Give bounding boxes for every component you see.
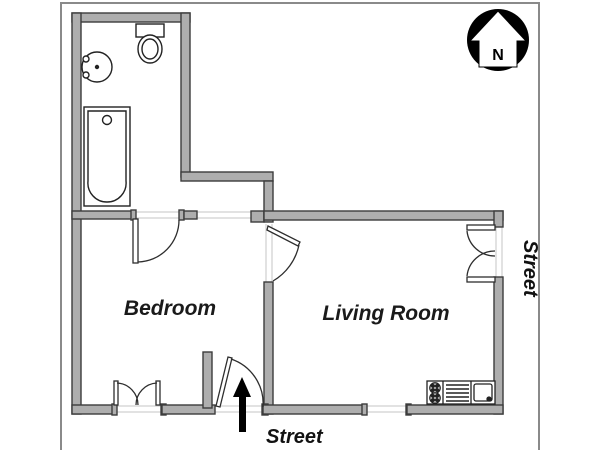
north-arrow-icon: N bbox=[467, 9, 529, 71]
door-jamb bbox=[179, 210, 184, 220]
bedroom-french-doors bbox=[114, 381, 160, 405]
passage-stub bbox=[251, 211, 264, 222]
bathroom-door bbox=[133, 219, 179, 263]
kitchen-unit bbox=[427, 381, 495, 404]
bathroom-bottom-wall-right bbox=[184, 211, 197, 219]
bedroom-label: Bedroom bbox=[124, 297, 216, 320]
street-label-right: Street bbox=[519, 240, 541, 298]
bottom-wall-1 bbox=[72, 405, 116, 414]
bottom-wall-3 bbox=[263, 405, 365, 414]
street-label-bottom: Street bbox=[266, 426, 324, 448]
living-room-label: Living Room bbox=[322, 302, 449, 325]
bottom-wall-4 bbox=[407, 405, 503, 414]
bathroom-top-wall bbox=[72, 13, 190, 22]
toilet-icon bbox=[136, 24, 164, 63]
entry-stub-wall bbox=[203, 352, 212, 408]
bathroom-fixtures bbox=[82, 24, 164, 206]
kitchen-sink-icon bbox=[471, 381, 492, 404]
living-room-top-wall bbox=[264, 211, 503, 220]
divider-wall-lower bbox=[264, 282, 273, 414]
sink-icon bbox=[82, 52, 112, 82]
floor-plan-drawing: N Bedroom Living Room Street Street bbox=[0, 0, 600, 450]
street-french-doors bbox=[467, 225, 495, 282]
hall-top-wall bbox=[181, 172, 273, 181]
bathroom-bottom-wall bbox=[72, 211, 132, 219]
door-jamb bbox=[362, 404, 367, 415]
bathtub-icon bbox=[84, 107, 130, 206]
north-letter: N bbox=[492, 47, 504, 64]
entrance-arrow-icon bbox=[233, 377, 251, 432]
walls bbox=[72, 13, 503, 415]
bathroom-right-wall bbox=[181, 13, 190, 177]
floor-plan: N Bedroom Living Room Street Street bbox=[0, 0, 600, 450]
